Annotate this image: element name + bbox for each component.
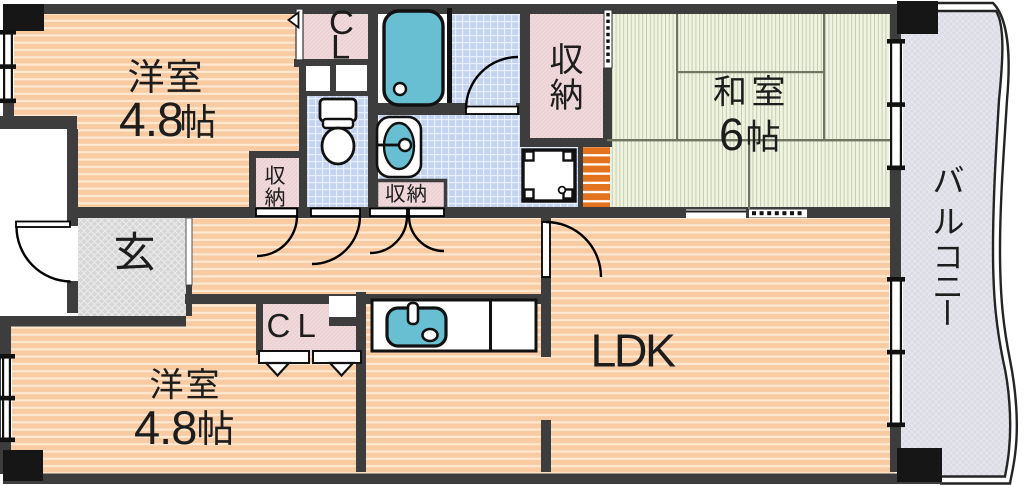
svg-text:4.8: 4.8 bbox=[119, 94, 183, 147]
svg-text:L: L bbox=[331, 29, 350, 67]
svg-text:4.8: 4.8 bbox=[134, 401, 196, 454]
svg-text:L: L bbox=[298, 307, 316, 344]
svg-text:C: C bbox=[267, 307, 291, 344]
svg-text:LDK: LDK bbox=[591, 325, 676, 377]
svg-text:6: 6 bbox=[719, 109, 744, 160]
